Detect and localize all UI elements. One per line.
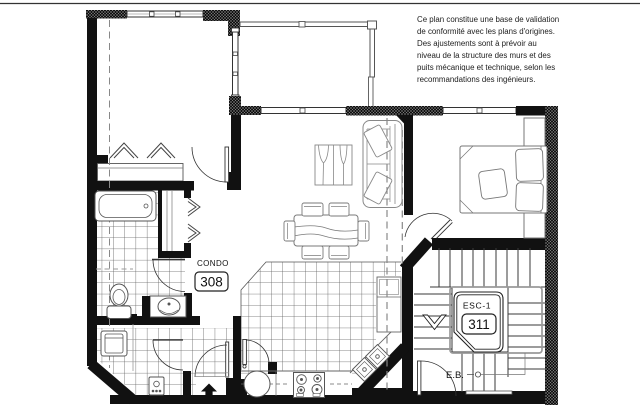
svg-text:308: 308 [200, 275, 223, 290]
svg-text:recommandations des ingénieurs: recommandations des ingénieurs. [417, 75, 535, 84]
svg-text:Des ajustements sont à prévoir: Des ajustements sont à prévoir au [417, 39, 537, 48]
svg-text:niveau de la structure des mur: niveau de la structure des murs et des [417, 51, 551, 60]
svg-text:Ce plan constitue une base de: Ce plan constitue une base de validation [417, 15, 559, 24]
svg-text:ESC-1: ESC-1 [463, 301, 491, 311]
svg-text:CONDO: CONDO [197, 259, 229, 268]
svg-text:de conformité avec les plans d: de conformité avec les plans d'origines. [417, 27, 555, 36]
svg-text:puits mécanique et technique,: puits mécanique et technique, selon les [417, 63, 555, 72]
svg-text:E.B.: E.B. [446, 370, 464, 381]
svg-text:311: 311 [468, 317, 490, 332]
